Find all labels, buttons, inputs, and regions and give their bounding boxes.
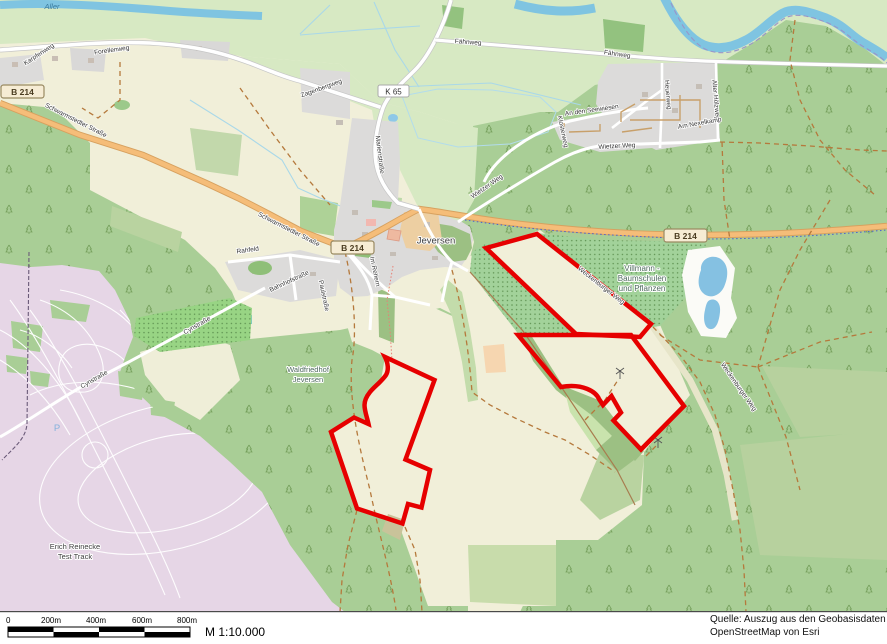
svg-text:B 214: B 214	[341, 243, 364, 253]
svg-text:0: 0	[6, 616, 11, 625]
svg-text:Baumschulen: Baumschulen	[618, 274, 666, 283]
svg-text:Erich Reinecke: Erich Reinecke	[50, 542, 100, 551]
svg-text:200m: 200m	[41, 616, 61, 625]
svg-text:800m: 800m	[177, 616, 197, 625]
svg-text:K 65: K 65	[385, 88, 402, 97]
svg-text:Quelle: Auszug aus den Geobasi: Quelle: Auszug aus den Geobasisdaten	[710, 614, 886, 625]
svg-text:Aller: Aller	[43, 2, 60, 11]
svg-text:Villmann -: Villmann -	[624, 264, 660, 273]
svg-text:B 214: B 214	[11, 87, 34, 97]
svg-text:Jeversen: Jeversen	[293, 375, 323, 384]
svg-text:Waldfriedhof: Waldfriedhof	[287, 365, 330, 374]
svg-text:600m: 600m	[132, 616, 152, 625]
svg-text:Test Track: Test Track	[58, 552, 92, 561]
svg-text:400m: 400m	[86, 616, 106, 625]
svg-text:M 1:10.000: M 1:10.000	[205, 625, 265, 639]
svg-text:P: P	[54, 423, 60, 434]
svg-text:OpenStreetMap von Esri: OpenStreetMap von Esri	[710, 627, 820, 638]
svg-text:und Pflanzen: und Pflanzen	[619, 284, 666, 293]
svg-text:Jeversen: Jeversen	[417, 236, 456, 247]
svg-text:B 214: B 214	[674, 231, 697, 241]
